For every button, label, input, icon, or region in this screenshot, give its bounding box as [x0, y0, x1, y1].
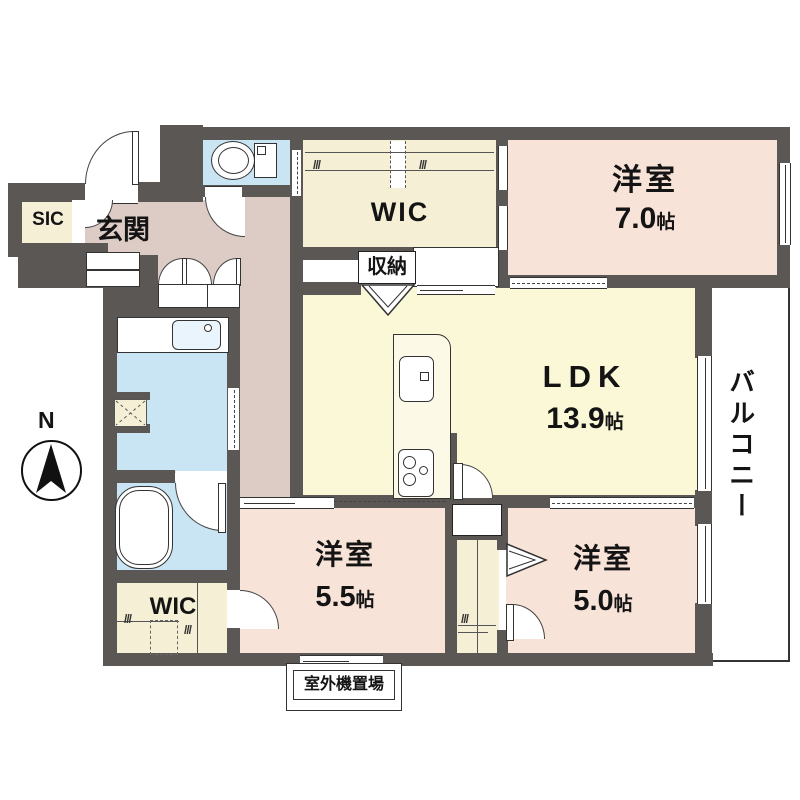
wall-vent-strip: [292, 150, 301, 196]
sliding-rail: [417, 285, 495, 295]
wall: [303, 282, 361, 295]
entrance-door-leaf: [132, 131, 139, 185]
wic-door-opening: [227, 590, 240, 628]
label-balcony: バルコニー: [726, 368, 755, 523]
label-bedroom-top-area: 7.0帖: [585, 202, 705, 235]
ldk-entry-door-marker: [361, 284, 416, 317]
compass-icon: [21, 440, 82, 501]
hanger-rod: [458, 632, 488, 633]
window-bedroom-balcony: [697, 524, 712, 604]
shoe-cabinet: [158, 284, 208, 308]
hanger-rod: [305, 170, 494, 171]
sliding-door-ldk-bedroom-right: [550, 497, 694, 509]
window-ldk-balcony: [697, 356, 712, 491]
north-arrow-icon: [23, 442, 80, 499]
closet-door-leaf: [236, 258, 241, 286]
hanger-mark: ///: [313, 158, 320, 172]
hanger-rod: [305, 152, 494, 153]
sliding-door-track: [334, 501, 445, 502]
wall: [138, 182, 203, 202]
label-sic: SIC: [24, 210, 72, 231]
wall: [160, 127, 790, 140]
closet-dashed-box: [150, 620, 178, 655]
wall-slit: [498, 146, 508, 190]
burner-icon: [403, 456, 416, 469]
wall: [103, 653, 713, 666]
toilet-button-icon: [257, 146, 266, 155]
label-storage-top: 収納: [359, 252, 415, 283]
sink-drain-icon: [420, 372, 429, 381]
hanger-mark: ///: [419, 158, 426, 172]
label-bedroom-right-area: 5.0帖: [558, 586, 648, 618]
label-bedroom-mid-name: 洋室: [300, 540, 390, 571]
entrance-step: [86, 270, 140, 287]
wall-slit: [498, 206, 508, 250]
closet-divider: [477, 540, 478, 653]
label-ldk-area: 13.9帖: [515, 402, 655, 435]
hanger-mark: ///: [184, 623, 191, 637]
label-entrance: 玄関: [96, 216, 150, 246]
north-label: N: [38, 408, 55, 433]
folding-door-marker: [506, 543, 548, 577]
storage-bottom-box: [452, 504, 502, 536]
wall: [227, 628, 240, 655]
storage-door-leaf: [453, 463, 463, 500]
closet-panel: [413, 247, 499, 287]
hallway: [238, 195, 292, 499]
wall: [103, 570, 240, 583]
bathtub-icon: [115, 486, 173, 569]
toilet-bowl-icon: [218, 147, 249, 174]
burner-knob-icon: [419, 466, 428, 475]
faucet-icon: [204, 324, 212, 332]
hanger-mark: ///: [461, 612, 468, 626]
entrance-step: [86, 252, 140, 270]
entrance-door-swing: [85, 131, 134, 184]
wall: [227, 505, 240, 590]
outdoor-unit-label-box: 室外機置場: [293, 670, 395, 700]
label-wic-top: WIC: [358, 198, 442, 228]
wall: [445, 540, 457, 653]
window: [779, 163, 791, 245]
bathroom-door-opening: [176, 471, 227, 483]
shoe-cabinet: [207, 284, 240, 308]
label-ldk-name: LDK: [515, 360, 655, 394]
bathroom-door-leaf: [218, 483, 226, 533]
stove-icon: [398, 449, 434, 497]
wall: [695, 288, 712, 358]
bedroom-right-door-leaf: [506, 604, 514, 641]
label-wic-bottom: WIC: [140, 594, 206, 620]
wall: [103, 470, 175, 483]
burner-icon: [403, 473, 416, 486]
label-bedroom-mid-area: 5.5帖: [300, 582, 390, 614]
floor-plan: /// /// /// /// /// 室外機置場 N SIC 玄関 WIC 収…: [0, 0, 800, 800]
storage-top-box: 収納: [358, 251, 416, 284]
wall: [695, 603, 712, 666]
washing-machine-pan-icon: [114, 399, 147, 427]
sliding-door-hall-bedroom-mid: [240, 497, 334, 509]
washbasin-icon: [172, 320, 221, 350]
outdoor-unit-label: 室外機置場: [294, 671, 394, 699]
sliding-door-ldk-bedroom-top: [510, 277, 607, 289]
wic-dashed-strip: [390, 141, 406, 188]
washroom-sliding-door: [228, 388, 239, 450]
hanger-mark: ///: [124, 612, 131, 626]
label-bedroom-top-name: 洋室: [585, 164, 705, 197]
label-bedroom-right-name: 洋室: [558, 544, 648, 575]
sic-door-opening: [72, 200, 85, 243]
